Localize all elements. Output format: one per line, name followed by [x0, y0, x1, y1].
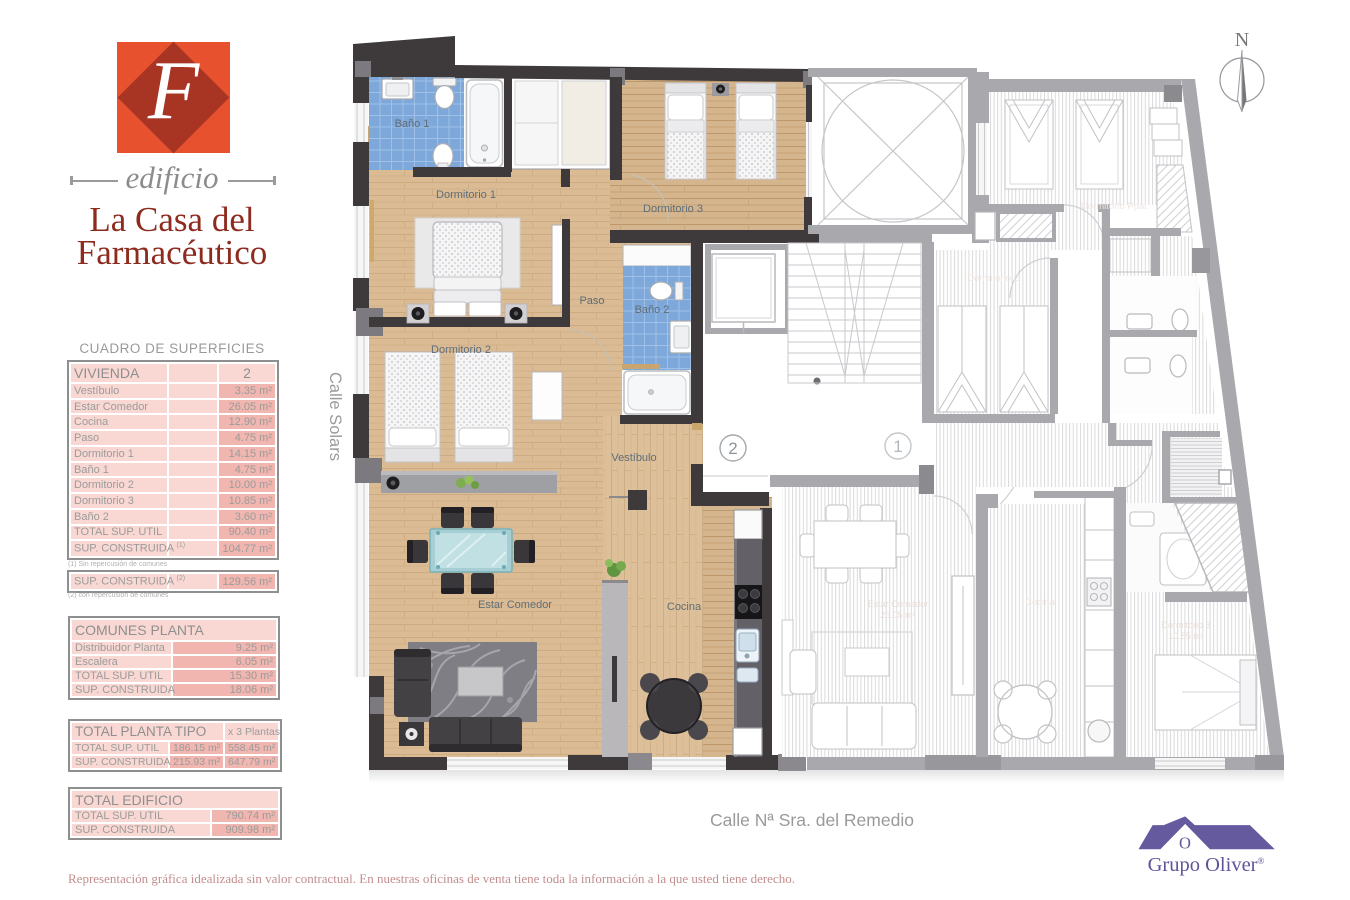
svg-text:2: 2: [728, 439, 737, 458]
svg-text:Dormitorio 2: Dormitorio 2: [431, 344, 491, 356]
svg-text:Dormitorio 3: Dormitorio 3: [1161, 620, 1210, 630]
svg-text:Vestíbulo: Vestíbulo: [611, 452, 656, 464]
svg-text:Estar Comedor: Estar Comedor: [478, 599, 552, 611]
svg-text:Paso: Paso: [579, 295, 604, 307]
svg-text:Baño 1: Baño 1: [395, 118, 430, 130]
svg-text:26.05 m²: 26.05 m²: [880, 610, 916, 620]
svg-text:Dormitorio 2: Dormitorio 2: [967, 273, 1019, 284]
svg-text:10.85 m²: 10.85 m²: [1168, 631, 1204, 641]
svg-text:Calle Nª Sra. del Remedio: Calle Nª Sra. del Remedio: [710, 810, 914, 830]
svg-text:Baño 2: Baño 2: [635, 304, 670, 316]
svg-text:Cocina: Cocina: [667, 601, 702, 613]
svg-text:O: O: [1179, 834, 1191, 853]
svg-text:Dormitorio 3: Dormitorio 3: [643, 203, 703, 215]
svg-text:Dormitorio Ppal.: Dormitorio Ppal.: [1081, 201, 1149, 212]
svg-text:N: N: [1235, 29, 1249, 51]
svg-text:Cocina: Cocina: [1025, 597, 1055, 608]
svg-text:1: 1: [893, 437, 902, 456]
svg-text:Estar Comedor: Estar Comedor: [868, 599, 929, 609]
svg-text:Dormitorio 1: Dormitorio 1: [436, 189, 496, 201]
svg-text:Calle Solars: Calle Solars: [326, 372, 344, 461]
svg-text:Grupo Oliver®: Grupo Oliver®: [1148, 854, 1265, 876]
